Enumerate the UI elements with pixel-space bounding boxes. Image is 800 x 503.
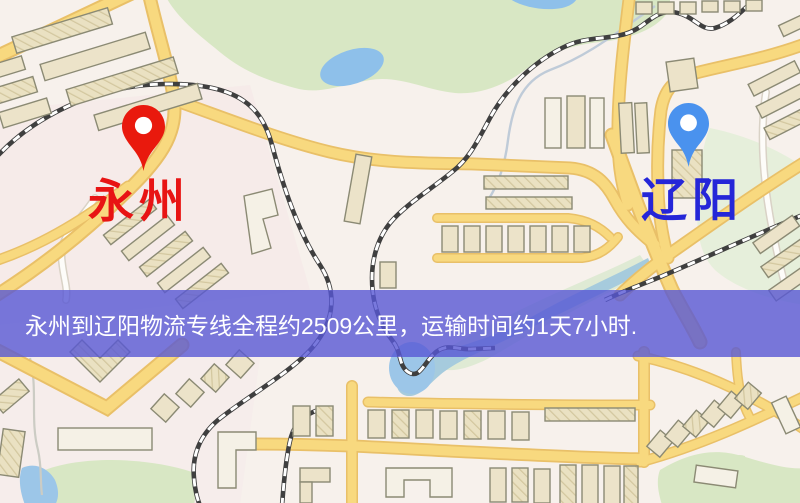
- route-info-banner: 永州到辽阳物流专线全程约2509公里，运输时间约1天7小时.: [0, 290, 800, 357]
- route-map: 永州 辽阳 永州到辽阳物流专线全程约2509公里，运输时间约1天7小时.: [0, 0, 800, 503]
- origin-city-label: 永州: [88, 179, 190, 225]
- map-background: [0, 0, 800, 503]
- destination-pin-icon[interactable]: [666, 102, 711, 169]
- origin-pin-icon[interactable]: [120, 104, 167, 173]
- destination-city-label: 辽阳: [641, 178, 743, 224]
- route-info-text: 永州到辽阳物流专线全程约2509公里，运输时间约1天7小时.: [0, 307, 637, 341]
